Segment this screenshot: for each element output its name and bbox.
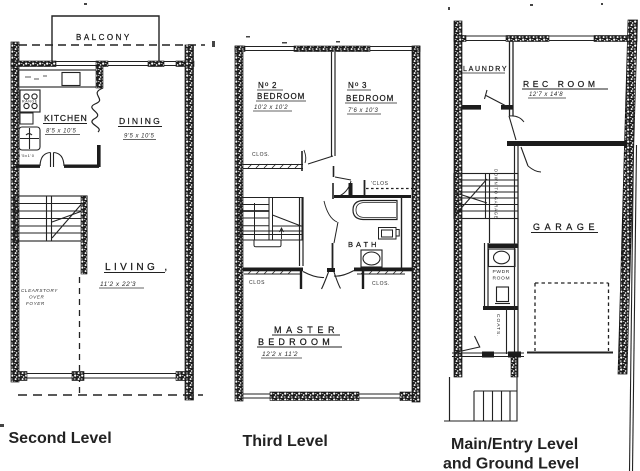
svg-text:8'5 x 10'5: 8'5 x 10'5 <box>46 129 76 135</box>
svg-text:MASTER: MASTER <box>274 325 339 335</box>
svg-text:PWDR: PWDR <box>493 269 510 275</box>
svg-text:DOWN TO GARAGE: DOWN TO GARAGE <box>494 169 499 219</box>
svg-text:COATS.: COATS. <box>495 314 501 338</box>
svg-text:CLOS.: CLOS. <box>372 281 390 287</box>
svg-text:10'2 x 10'2: 10'2 x 10'2 <box>254 105 288 111</box>
svg-text:3: 3 <box>362 81 368 90</box>
svg-text:BALCONY: BALCONY <box>76 33 132 42</box>
svg-text:BEDROOM: BEDROOM <box>258 337 334 347</box>
svg-text:o: o <box>355 82 360 88</box>
svg-text:RANGE: RANGE <box>22 100 38 104</box>
svg-text:9'5 x 10'5: 9'5 x 10'5 <box>124 134 154 140</box>
svg-text:DINING: DINING <box>119 116 162 126</box>
svg-text:KITCHEN: KITCHEN <box>44 113 88 123</box>
svg-text:REC ROOM: REC ROOM <box>523 79 599 89</box>
svg-text:Second Level: Second Level <box>9 430 112 447</box>
svg-text:12'7 x 14'8: 12'7 x 14'8 <box>529 92 563 98</box>
svg-text:o: o <box>265 82 270 88</box>
svg-text:BATH: BATH <box>348 240 379 249</box>
svg-text:2: 2 <box>272 81 278 90</box>
svg-text:FOYER: FOYER <box>26 301 45 306</box>
svg-text:LIVING ,: LIVING , <box>105 262 171 273</box>
svg-text:Main/Entry Level: Main/Entry Level <box>451 436 578 453</box>
svg-text:7'6 x 10'3: 7'6 x 10'3 <box>348 108 378 114</box>
svg-text:12'2 x 11'2: 12'2 x 11'2 <box>262 351 298 358</box>
svg-text:LAUNDRY: LAUNDRY <box>463 66 508 73</box>
svg-text:11'2 x 22'3: 11'2 x 22'3 <box>100 281 136 288</box>
svg-text:CLEARSTORY: CLEARSTORY <box>21 288 58 293</box>
svg-text:'CLOS: 'CLOS <box>371 181 389 187</box>
svg-text:Third Level: Third Level <box>243 433 328 450</box>
svg-text:BEDROOM: BEDROOM <box>257 92 305 101</box>
svg-text:ROOM: ROOM <box>493 276 511 282</box>
svg-text:GARAGE: GARAGE <box>533 222 599 232</box>
svg-text:CLOS: CLOS <box>249 280 265 286</box>
svg-text:BEDROOM: BEDROOM <box>346 94 394 103</box>
svg-text:OVER: OVER <box>29 295 45 300</box>
svg-text:CLOS.: CLOS. <box>252 152 270 158</box>
svg-text:3'5x1'0: 3'5x1'0 <box>18 153 35 158</box>
svg-text:and Ground Level: and Ground Level <box>443 456 579 471</box>
